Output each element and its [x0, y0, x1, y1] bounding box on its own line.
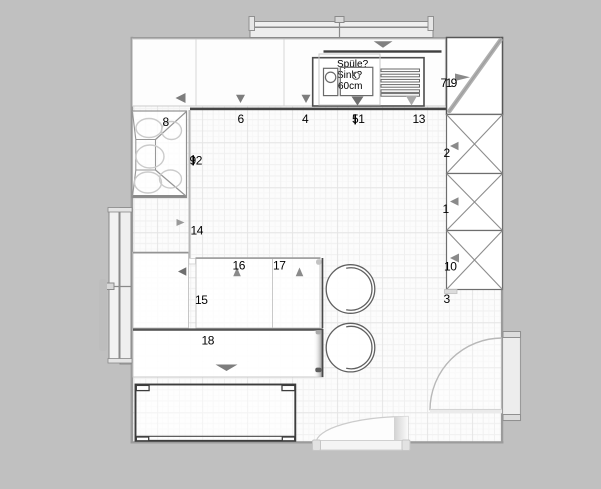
svg-text:Spüle?: Spüle?	[337, 59, 369, 70]
svg-text:60cm: 60cm	[338, 81, 362, 92]
svg-text:92: 92	[190, 153, 203, 167]
svg-text:4: 4	[302, 112, 309, 126]
svg-text:6: 6	[238, 112, 245, 126]
svg-text:17: 17	[273, 259, 286, 273]
svg-text:3: 3	[444, 292, 451, 306]
svg-text:8: 8	[163, 115, 170, 129]
svg-text:15: 15	[195, 293, 208, 307]
svg-text:10: 10	[444, 260, 457, 274]
svg-text:14: 14	[191, 224, 204, 238]
svg-text:1: 1	[443, 202, 450, 216]
svg-text:18: 18	[202, 334, 215, 348]
svg-text:719: 719	[441, 76, 458, 90]
svg-text:16: 16	[233, 259, 246, 273]
svg-text:51: 51	[352, 112, 365, 126]
svg-text:13: 13	[413, 112, 426, 126]
svg-text:2: 2	[444, 146, 451, 160]
